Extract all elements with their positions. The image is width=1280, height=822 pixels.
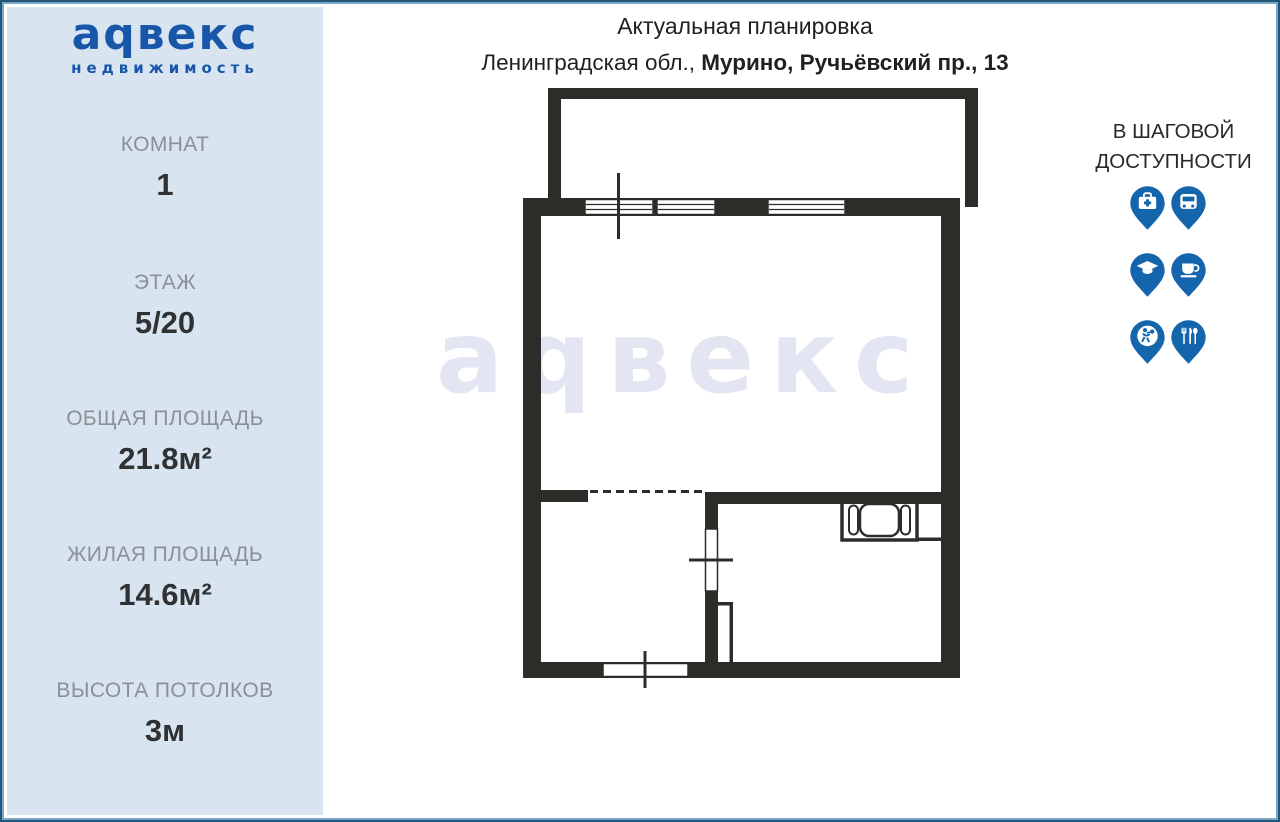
shaft-wall-right bbox=[730, 605, 734, 662]
stat-rooms-value: 1 bbox=[7, 167, 323, 203]
stat-floor: ЭТАЖ 5/20 bbox=[7, 270, 323, 341]
nearby-title-line1: В ШАГОВОЙ bbox=[1086, 117, 1261, 147]
listing-card: аqвекс недвижимость КОМНАТ 1 ЭТАЖ 5/20 О… bbox=[0, 0, 1280, 822]
address-bold: Мурино, Ручьёвский пр., 13 bbox=[701, 50, 1008, 75]
stat-living-area-value: 14.6м² bbox=[7, 577, 323, 613]
logo-wordmark: аqвекс bbox=[7, 13, 323, 57]
logo-subtext: недвижимость bbox=[7, 59, 323, 77]
nearby-title: В ШАГОВОЙ ДОСТУПНОСТИ bbox=[1086, 117, 1261, 177]
education-pin-icon bbox=[1129, 252, 1166, 298]
stat-ceiling-height-value: 3м bbox=[7, 713, 323, 749]
shaft-wall-top bbox=[718, 602, 733, 606]
stat-rooms-label: КОМНАТ bbox=[7, 132, 323, 158]
stat-ceiling-height-label: ВЫСОТА ПОТОЛКОВ bbox=[7, 678, 323, 704]
address-prefix: Ленинградская обл., bbox=[481, 50, 701, 75]
advex-logo: аqвекс недвижимость bbox=[7, 13, 323, 77]
sidebar: аqвекс недвижимость КОМНАТ 1 ЭТАЖ 5/20 О… bbox=[7, 7, 323, 815]
stat-rooms: КОМНАТ 1 bbox=[7, 132, 323, 203]
stat-total-area-label: ОБЩАЯ ПЛОЩАДЬ bbox=[7, 406, 323, 432]
stat-floor-value: 5/20 bbox=[7, 305, 323, 341]
niche-ledge bbox=[917, 538, 941, 542]
stat-total-area: ОБЩАЯ ПЛОЩАДЬ 21.8м² bbox=[7, 406, 323, 477]
bathtub-icon bbox=[842, 500, 917, 540]
stat-living-area: ЖИЛАЯ ПЛОЩАДЬ 14.6м² bbox=[7, 542, 323, 613]
stat-floor-label: ЭТАЖ bbox=[7, 270, 323, 296]
stat-living-area-label: ЖИЛАЯ ПЛОЩАДЬ bbox=[7, 542, 323, 568]
bus-pin-icon bbox=[1170, 185, 1207, 231]
plan-header: Актуальная планировка Ленинградская обл.… bbox=[420, 11, 1070, 78]
balcony-walls bbox=[548, 88, 978, 207]
window-icon bbox=[768, 200, 845, 215]
sports-pin-icon bbox=[1129, 319, 1166, 365]
walls bbox=[523, 198, 960, 678]
window-icon bbox=[657, 200, 715, 215]
nearby-title-line2: ДОСТУПНОСТИ bbox=[1086, 147, 1261, 177]
stat-ceiling-height: ВЫСОТА ПОТОЛКОВ 3м bbox=[7, 678, 323, 749]
address-line: Ленинградская обл., Мурино, Ручьёвский п… bbox=[420, 48, 1070, 78]
nearby-icons bbox=[1129, 185, 1207, 365]
restaurant-pin-icon bbox=[1170, 319, 1207, 365]
medical-pin-icon bbox=[1129, 185, 1166, 231]
cafe-pin-icon bbox=[1170, 252, 1207, 298]
stat-total-area-value: 21.8м² bbox=[7, 441, 323, 477]
page-title: Актуальная планировка bbox=[420, 11, 1070, 41]
